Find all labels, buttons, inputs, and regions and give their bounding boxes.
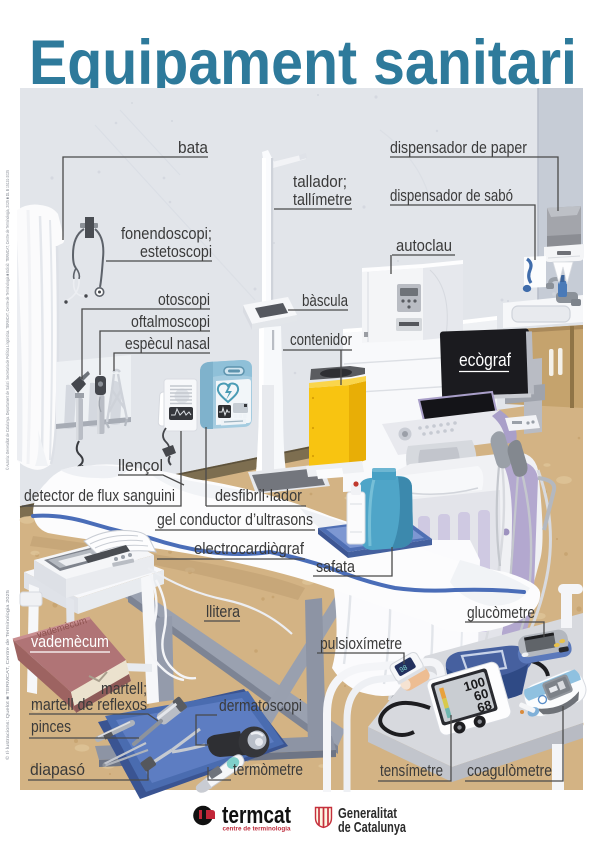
svg-text:tallador;: tallador;	[293, 172, 347, 191]
svg-text:pinces: pinces	[31, 717, 71, 736]
svg-text:dermatoscopi: dermatoscopi	[219, 696, 302, 715]
svg-text:pulsioxímetre: pulsioxímetre	[320, 634, 402, 653]
svg-text:estetoscopi: estetoscopi	[140, 242, 212, 261]
svg-text:© Il·lustracions: Quelot ■ TER: © Il·lustracions: Quelot ■ TERMCAT, Cent…	[4, 589, 10, 760]
svg-text:desfibril·lador: desfibril·lador	[215, 486, 302, 505]
svg-text:coagulòmetre: coagulòmetre	[467, 761, 552, 780]
svg-text:tensímetre: tensímetre	[380, 761, 443, 780]
svg-text:safata: safata	[316, 557, 355, 576]
svg-text:tallímetre: tallímetre	[293, 190, 352, 209]
svg-text:bàscula: bàscula	[302, 291, 348, 310]
svg-text:electrocardiògraf: electrocardiògraf	[194, 539, 304, 558]
svg-text:autoclau: autoclau	[396, 236, 452, 255]
svg-text:gel conductor d’ultrasons: gel conductor d’ultrasons	[157, 510, 313, 529]
svg-text:detector de flux sanguini: detector de flux sanguini	[24, 486, 175, 505]
svg-text:fonendoscopi;: fonendoscopi;	[121, 224, 212, 243]
svg-text:termòmetre: termòmetre	[233, 760, 303, 779]
svg-text:llitera: llitera	[206, 602, 240, 621]
svg-text:vademècum: vademècum	[31, 632, 109, 651]
svg-text:bata: bata	[178, 138, 208, 157]
svg-text:centre de terminologia: centre de terminologia	[223, 826, 291, 833]
svg-text:ecògraf: ecògraf	[459, 350, 512, 370]
svg-text:llençol: llençol	[118, 456, 163, 475]
svg-text:diapasó: diapasó	[30, 760, 85, 779]
svg-text:© Autoria: Generalitat de Cata: © Autoria: Generalitat de Catalunya. Dep…	[4, 170, 10, 470]
svg-text:espècul nasal: espècul nasal	[125, 334, 210, 353]
svg-text:otoscopi: otoscopi	[158, 290, 210, 309]
svg-text:martell de reflexos: martell de reflexos	[31, 695, 147, 714]
svg-text:dispensador de paper: dispensador de paper	[390, 138, 527, 157]
svg-text:dispensador de sabó: dispensador de sabó	[390, 186, 513, 205]
svg-text:glucòmetre: glucòmetre	[467, 603, 535, 622]
svg-text:contenidor: contenidor	[290, 330, 352, 349]
svg-text:de Catalunya: de Catalunya	[338, 819, 406, 836]
svg-text:Equipament sanitari: Equipament sanitari	[29, 28, 577, 98]
svg-text:oftalmoscopi: oftalmoscopi	[131, 312, 210, 331]
